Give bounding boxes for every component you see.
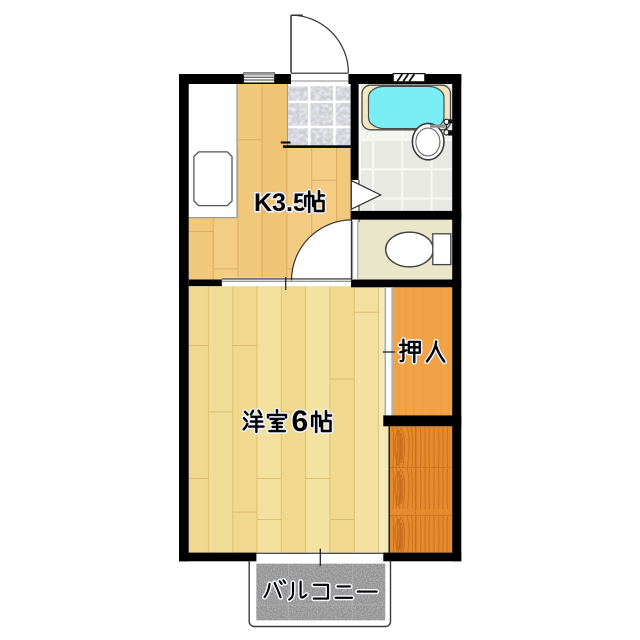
svg-text:K3.5: K3.5	[254, 189, 307, 217]
svg-text:6: 6	[292, 405, 309, 438]
